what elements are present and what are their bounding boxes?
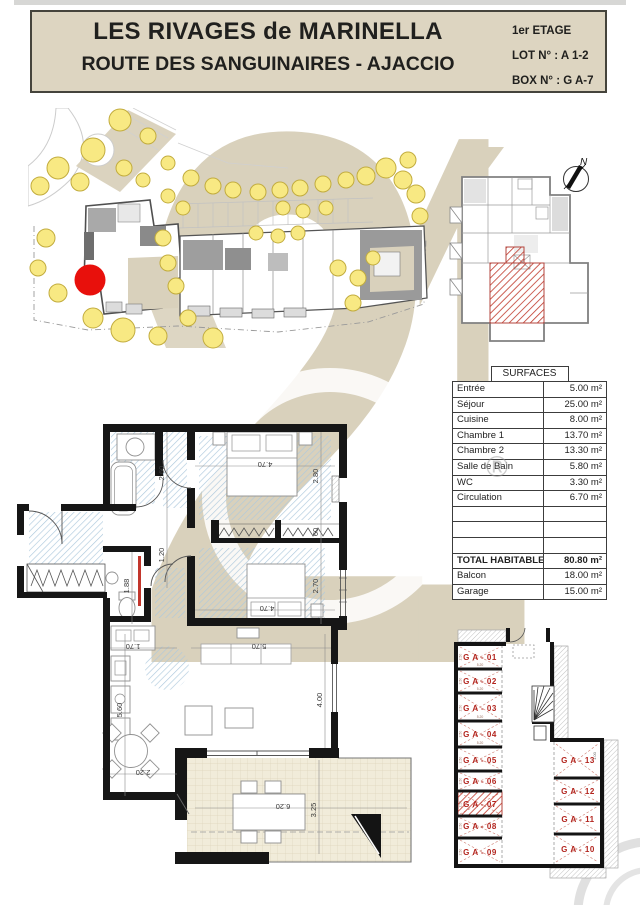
armchair (185, 706, 212, 735)
garage-box-dim: 2.50 (459, 849, 463, 856)
table-row: WC3.30 m² (453, 475, 606, 491)
north-label: N (580, 157, 588, 168)
chair (265, 781, 281, 793)
table-row: Circulation6.70 m² (453, 490, 606, 506)
nightstand (213, 432, 225, 445)
surfaces-table-title: SURFACES (491, 366, 569, 382)
garage-box-label: G A - 03 (463, 704, 497, 713)
dim-label: 2.60 (157, 466, 166, 481)
dim-label: 2.80 (311, 469, 320, 484)
site-plan (28, 108, 430, 350)
table-row: Cuisine8.00 m² (453, 412, 606, 428)
box-label: BOX N° : G A-7 (512, 69, 593, 94)
lot-info: 1er ETAGE LOT N° : A 1-2 BOX N° : G A-7 (512, 19, 593, 94)
dim-label: 1.20 (157, 548, 166, 563)
garage-box-label: G A - 06 (463, 777, 497, 786)
north-arrow: N (564, 157, 589, 192)
dim-label: 4.00 (315, 693, 324, 708)
location-marker (75, 265, 106, 296)
dim-label: 4.70 (258, 460, 273, 469)
kitchen-table (115, 735, 148, 768)
chair (141, 724, 159, 742)
chair (265, 831, 281, 843)
garage-box-dim: 5.20 (477, 663, 484, 667)
table-row: Chambre 113.70 m² (453, 428, 606, 444)
table-row: Entrée5.00 m² (453, 382, 606, 397)
garage-box-dim: 1.00 (592, 751, 597, 760)
garage-box-label: G A - 04 (463, 730, 497, 739)
garage-box-dim: 2.50 (459, 731, 463, 738)
garage-box-label: G A - 02 (463, 677, 497, 686)
table-row-empty (453, 521, 606, 537)
garage-box-label: G A - 09 (463, 848, 497, 857)
table-row: Séjour25.00 m² (453, 397, 606, 413)
table-row: Garage15.00 m² (453, 584, 606, 600)
coffee-table (225, 708, 253, 728)
lot-label: LOT N° : A 1-2 (512, 44, 593, 69)
garage-box-dim: 2.50 (459, 823, 463, 830)
dim-label: 1.88 (122, 579, 131, 594)
garage-box-label: G A - 05 (463, 756, 497, 765)
table-row: Balcon18.00 m² (453, 568, 606, 584)
garage-box-dim: 5.20 (477, 741, 484, 745)
parking-stalls (178, 198, 373, 228)
garage-box-label: G A - 12 (561, 787, 595, 796)
apartment-plan: 2.60 1.20 1.88 4.70 2.80 60 2.70 4.70 5.… (15, 418, 435, 888)
project-subtitle: ROUTE DES SANGUINAIRES - AJACCIO (32, 53, 504, 76)
key-road (462, 147, 504, 177)
garage-box-dim: 2.50 (459, 705, 463, 712)
surfaces-table-body: Entrée5.00 m² Séjour25.00 m² Cuisine8.00… (452, 381, 607, 600)
dim-label: 1.70 (126, 642, 141, 651)
dim-label: 60 (311, 528, 320, 536)
registered-mark: ® (486, 453, 508, 483)
title-block: LES RIVAGES de MARINELLA ROUTE DES SANGU… (30, 10, 607, 93)
scan-edge-strip (14, 0, 626, 5)
dim-label: 6.20 (276, 802, 291, 811)
garage-box-dim: 2.50 (459, 678, 463, 685)
garage-box-label: G A - 10 (561, 845, 595, 854)
wc-toilet (119, 598, 135, 619)
balcony-table (233, 794, 305, 830)
floor-label: 1er ETAGE (512, 19, 593, 44)
nightstand (299, 432, 312, 445)
dim-label: 5.70 (252, 642, 267, 651)
red-wall-strip (138, 556, 141, 606)
dim-label: 2.20 (136, 768, 151, 777)
key-plan: N (448, 143, 596, 363)
garage-box-label: G A - 01 (463, 653, 497, 662)
table-row-total: TOTAL HABITABLE80.80 m² (453, 553, 606, 569)
garage-plan: G A - 01 G A - 02 G A - 03 G A - 04 G A … (450, 628, 625, 886)
wc-basin (106, 572, 118, 584)
table-row: Salle de Bain5.80 m² (453, 459, 606, 475)
garage-box-dim: 2.50 (459, 778, 463, 785)
garage-box-dim: 2.50 (459, 654, 463, 661)
site-building-right (180, 226, 427, 318)
table-row: Chambre 213.30 m² (453, 443, 606, 459)
garage-box-label: G A - 13 (561, 756, 595, 765)
dim-label: 3.25 (309, 803, 318, 818)
garage-box-label: G A - 08 (463, 822, 497, 831)
dim-label: 4.70 (260, 604, 275, 613)
dim-label: 2.70 (311, 579, 320, 594)
sofa (201, 644, 291, 664)
chair (241, 781, 257, 793)
garage-box-dim: 2.50 (459, 757, 463, 764)
desk (237, 628, 259, 638)
project-title: LES RIVAGES de MARINELLA (32, 18, 504, 46)
plan-sheet: { "header": { "title": "LES RIVAGES de M… (0, 0, 640, 905)
chair (241, 831, 257, 843)
table-row-empty (453, 506, 606, 522)
garage-box-label: G A - 07 (463, 800, 497, 809)
surfaces-table: SURFACES Entrée5.00 m² Séjour25.00 m² Cu… (452, 366, 607, 600)
garage-box-dim: 2.50 (459, 801, 463, 808)
garage-box-label: G A - 11 (561, 815, 594, 824)
dim-label: 5.60 (115, 703, 124, 718)
garage-box-dim: 5.20 (477, 715, 484, 719)
key-balconies (450, 207, 462, 295)
bath-basin (126, 438, 144, 456)
garage-box-dim: 5.20 (477, 687, 484, 691)
table-row-empty (453, 537, 606, 553)
